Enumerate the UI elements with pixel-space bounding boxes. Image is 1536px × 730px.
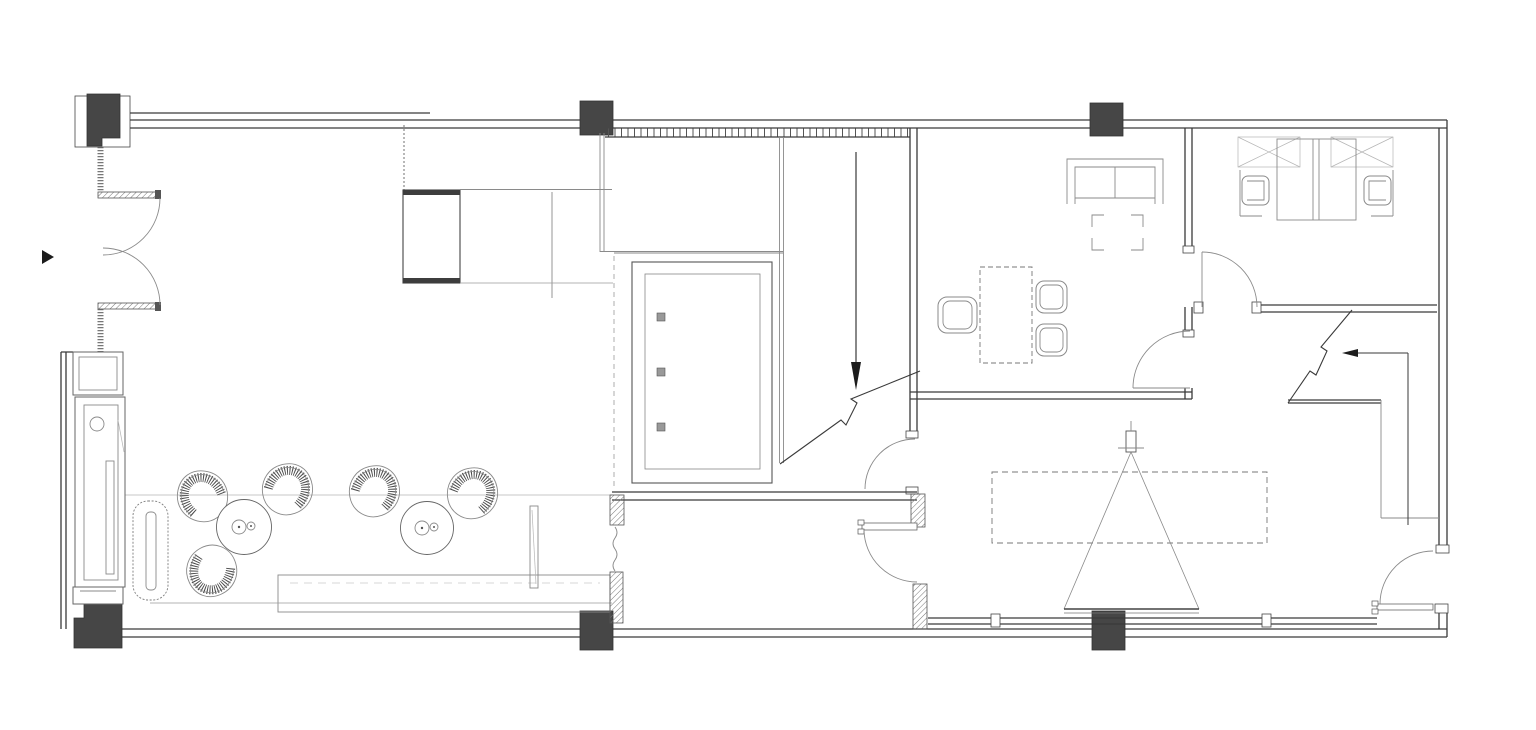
cabinet — [73, 352, 123, 395]
cabinet — [73, 587, 123, 604]
entrance-arrow-icon — [42, 250, 54, 264]
office-chair — [1036, 281, 1067, 313]
round-table — [401, 502, 454, 555]
room-manager-office — [910, 128, 1194, 399]
column — [74, 604, 122, 648]
finance-desks — [1238, 137, 1393, 220]
round-table — [217, 500, 272, 555]
right-staircase — [1288, 310, 1449, 613]
left-wall-fixtures — [73, 352, 125, 604]
office-chair — [1036, 324, 1067, 356]
entry-door-swing — [103, 198, 160, 255]
column — [580, 611, 613, 650]
office-chair — [1242, 176, 1269, 205]
bench — [133, 501, 168, 600]
room-hall — [123, 125, 613, 495]
office-chair — [1364, 176, 1391, 205]
center-staircase — [780, 137, 921, 464]
break-line — [780, 371, 920, 464]
shoe-display-rack — [600, 133, 910, 253]
stair-direction-arrow-icon — [851, 362, 861, 390]
door-leaf — [1377, 604, 1433, 610]
shoe-change-area — [133, 454, 612, 612]
sofa — [1067, 159, 1163, 204]
room-shoe-storage — [610, 494, 927, 629]
lounge-chair — [340, 456, 409, 526]
stair-direction-arrow-icon — [1342, 349, 1358, 357]
room-finance — [1194, 137, 1437, 313]
desk — [980, 267, 1032, 363]
coffee-table — [1092, 215, 1143, 250]
door-jamb — [98, 192, 160, 198]
conference-table — [992, 472, 1267, 543]
structural-columns — [74, 94, 1125, 650]
room-meeting — [928, 421, 1433, 627]
light-pool — [614, 253, 783, 490]
bench-slot — [146, 512, 156, 590]
floor-plan-canvas — [0, 0, 1536, 730]
column — [1092, 611, 1125, 650]
flexible-partition — [613, 527, 617, 571]
storage-door-swing — [865, 439, 915, 489]
entry-door-swing — [103, 248, 160, 305]
office-door-swing — [1133, 331, 1190, 388]
door-leaf — [862, 523, 917, 530]
door-swing — [1380, 551, 1433, 604]
door-swing — [864, 530, 917, 582]
office-armchair — [938, 297, 977, 333]
door-jamb — [98, 303, 160, 309]
door-stop — [155, 190, 161, 199]
finance-door-swing — [1202, 252, 1257, 307]
tall-cabinet — [75, 397, 125, 587]
entrance — [42, 190, 161, 311]
floor-plan-svg — [0, 0, 1536, 730]
display-counter — [278, 575, 610, 612]
feature-wall-panel — [403, 190, 460, 283]
break-line — [1288, 310, 1352, 403]
projection-cone — [1064, 452, 1199, 609]
projector — [1126, 431, 1136, 452]
column — [87, 94, 120, 146]
column — [1090, 103, 1123, 136]
